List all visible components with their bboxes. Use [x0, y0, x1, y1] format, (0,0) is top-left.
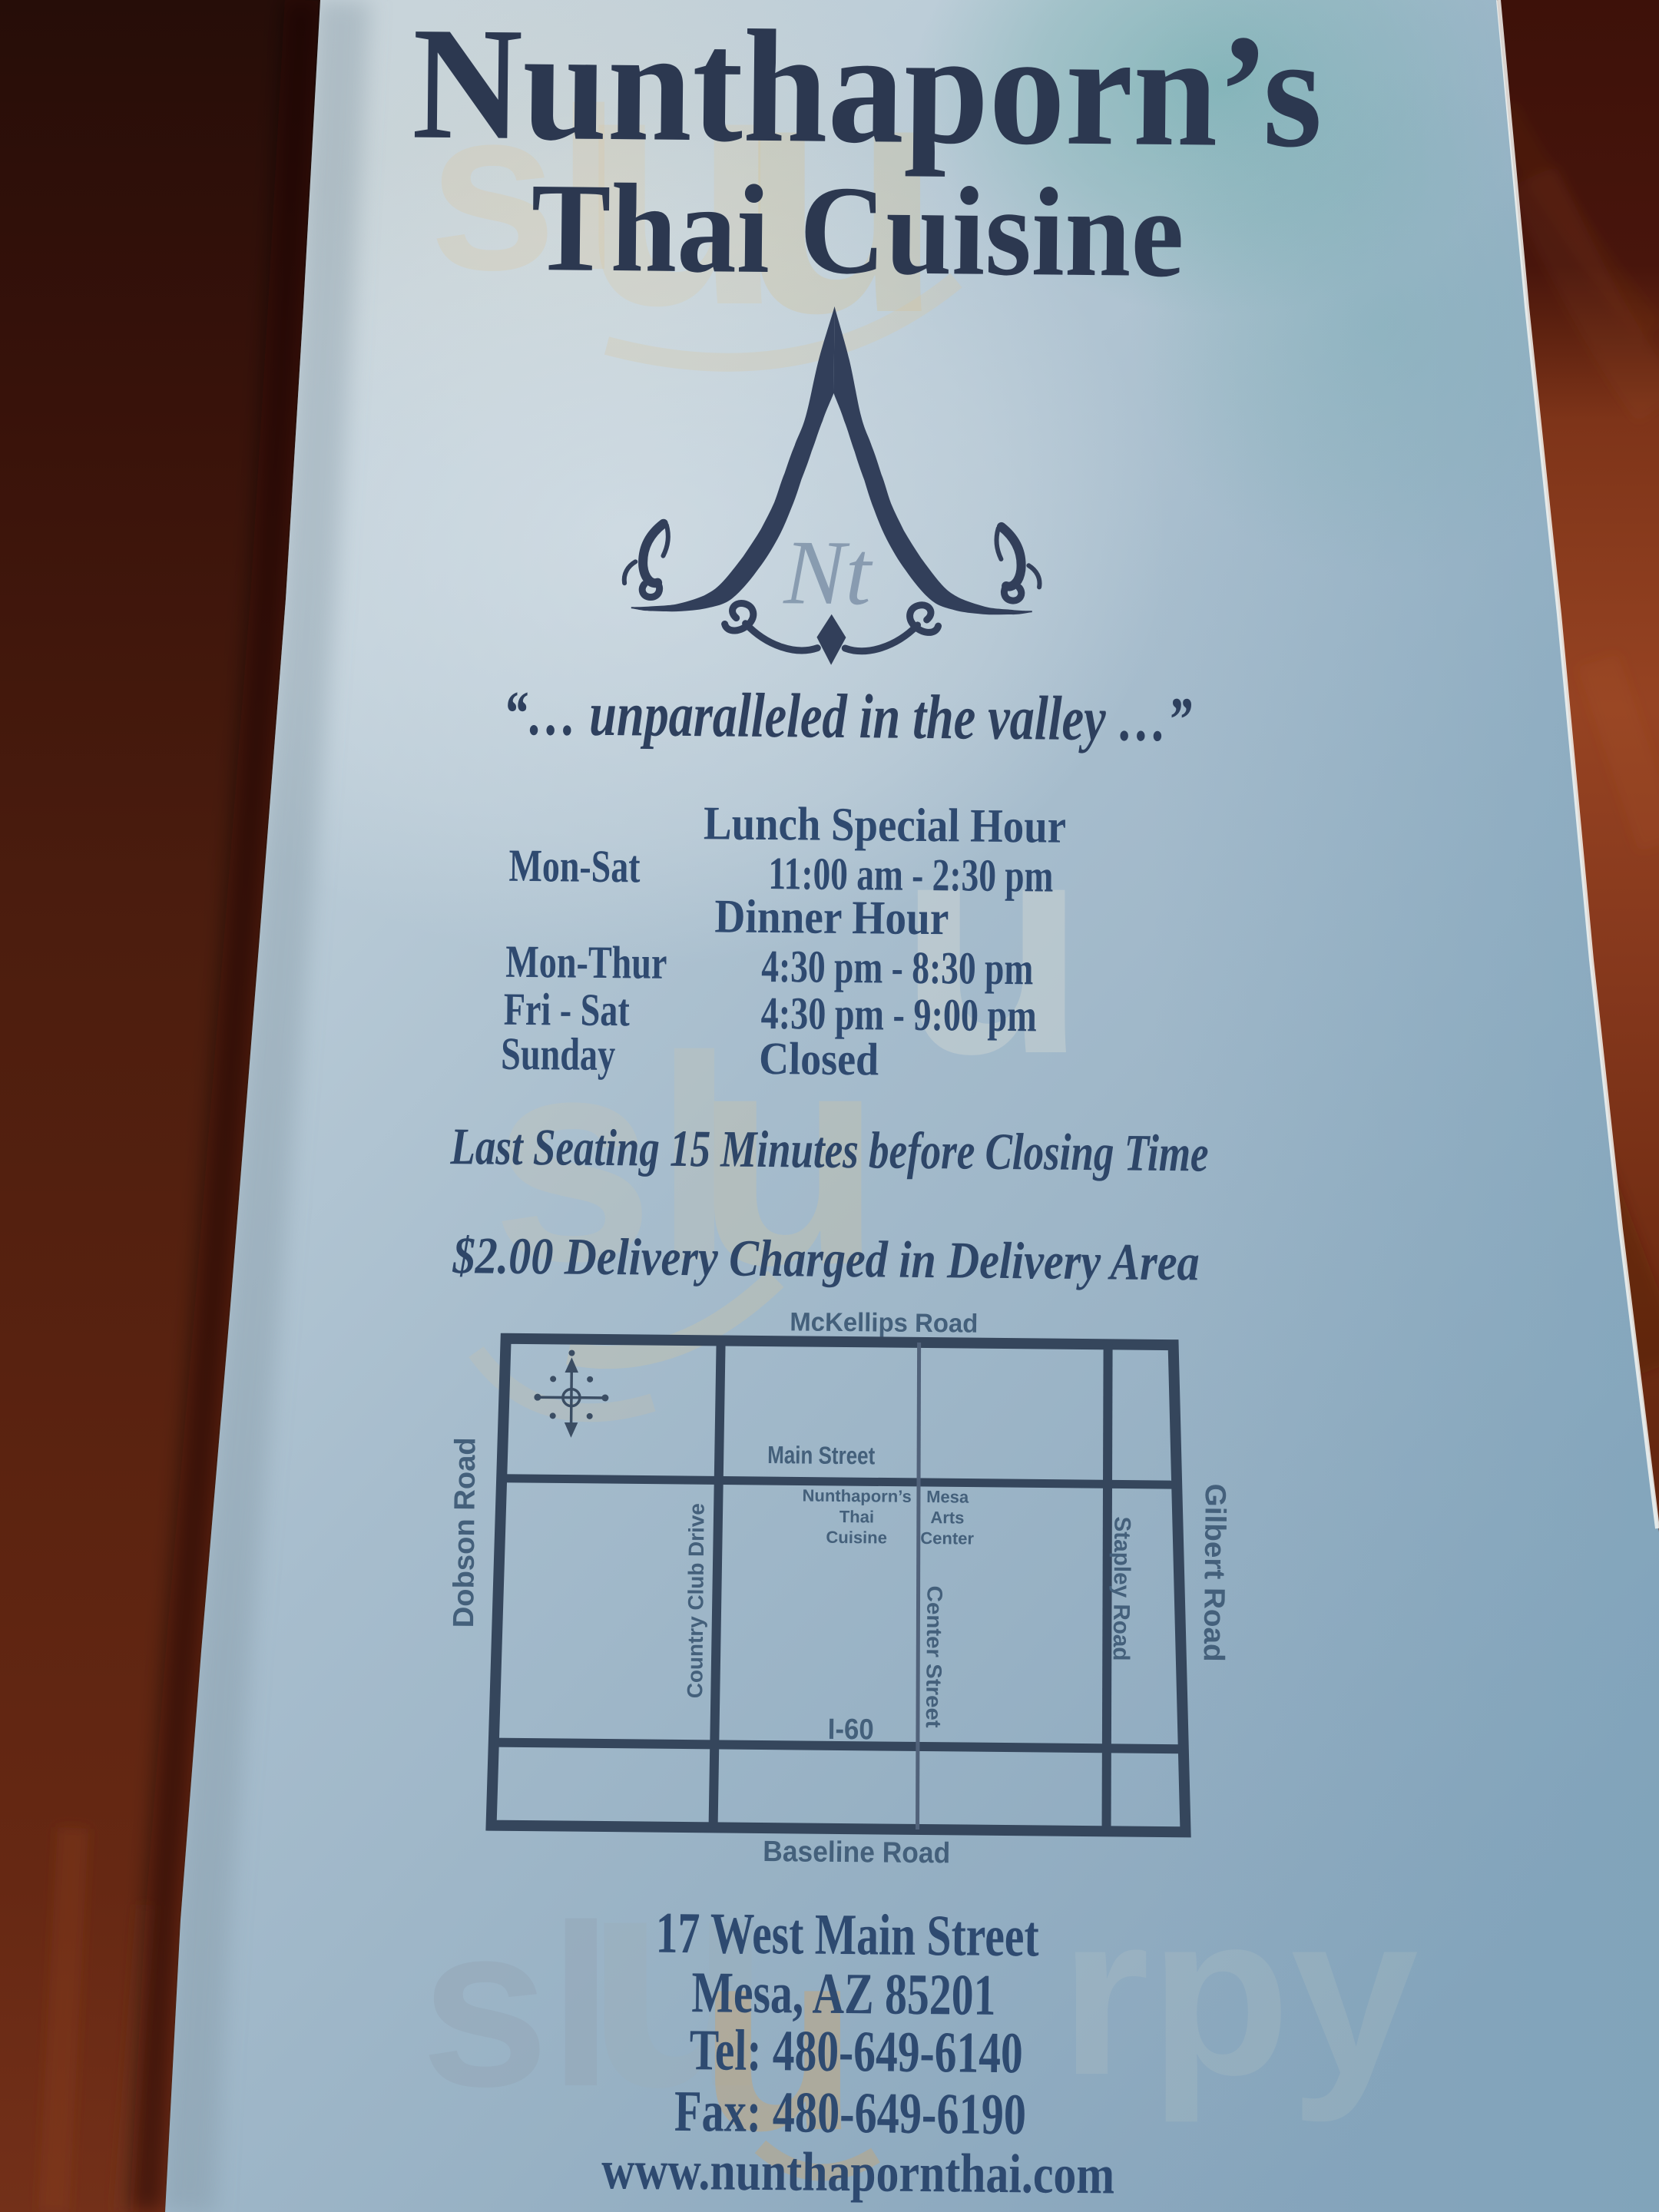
- svg-text:www.nunthapornthai.com: www.nunthapornthai.com: [601, 2139, 1115, 2205]
- svg-text:Last Seating 15 Minutes before: Last Seating 15 Minutes before Closing T…: [449, 1117, 1208, 1182]
- svg-text:Mesa: Mesa: [926, 1487, 969, 1507]
- svg-text:sl: sl: [421, 1876, 613, 2134]
- svg-text:Baseline Road: Baseline Road: [763, 1836, 950, 1869]
- svg-text:Gilbert Road: Gilbert Road: [1197, 1483, 1231, 1661]
- svg-text:Fax: 480-649-6190: Fax: 480-649-6190: [674, 2079, 1027, 2147]
- svg-text:Nunthaporn’s: Nunthaporn’s: [412, 0, 1323, 181]
- svg-text:Mon-Thur: Mon-Thur: [505, 936, 667, 988]
- svg-text:Main Street: Main Street: [767, 1441, 876, 1469]
- svg-text:Center: Center: [920, 1528, 974, 1548]
- svg-text:Thai Cuisine: Thai Cuisine: [531, 157, 1185, 303]
- svg-text:Sunday: Sunday: [501, 1028, 616, 1080]
- svg-text:Lunch Special Hour: Lunch Special Hour: [704, 797, 1067, 853]
- svg-text:Dinner Hour: Dinner Hour: [714, 890, 949, 945]
- svg-text:Dobson Road: Dobson Road: [448, 1437, 482, 1628]
- svg-text:Arts: Arts: [930, 1508, 964, 1527]
- svg-text:17 West Main Street: 17 West Main Street: [655, 1901, 1039, 1969]
- svg-text:Nunthaporn’s: Nunthaporn’s: [802, 1485, 911, 1505]
- svg-text:McKellips Road: McKellips Road: [790, 1307, 978, 1338]
- svg-text:I-60: I-60: [828, 1714, 874, 1747]
- svg-text:Stapley Road: Stapley Road: [1108, 1516, 1135, 1661]
- svg-text:Mon-Sat: Mon-Sat: [508, 840, 641, 892]
- svg-text:“… unparalleled in the valley: “… unparalleled in the valley …”: [503, 678, 1193, 755]
- svg-text:Cuisine: Cuisine: [826, 1528, 887, 1548]
- svg-text:Tel: 480-649-6140: Tel: 480-649-6140: [689, 2018, 1023, 2085]
- svg-text:Thai: Thai: [839, 1507, 874, 1526]
- svg-text:Center Street: Center Street: [922, 1586, 947, 1728]
- svg-text:Closed: Closed: [759, 1033, 879, 1084]
- svg-text:$2.00 Delivery Charged in Deli: $2.00 Delivery Charged in Delivery Area: [452, 1226, 1200, 1291]
- svg-text:4:30 pm - 8:30 pm: 4:30 pm - 8:30 pm: [761, 941, 1034, 994]
- svg-text:Nt: Nt: [783, 521, 873, 624]
- svg-text:rpy: rpy: [1060, 1865, 1420, 2124]
- svg-text:Country Club Drive: Country Club Drive: [683, 1503, 708, 1698]
